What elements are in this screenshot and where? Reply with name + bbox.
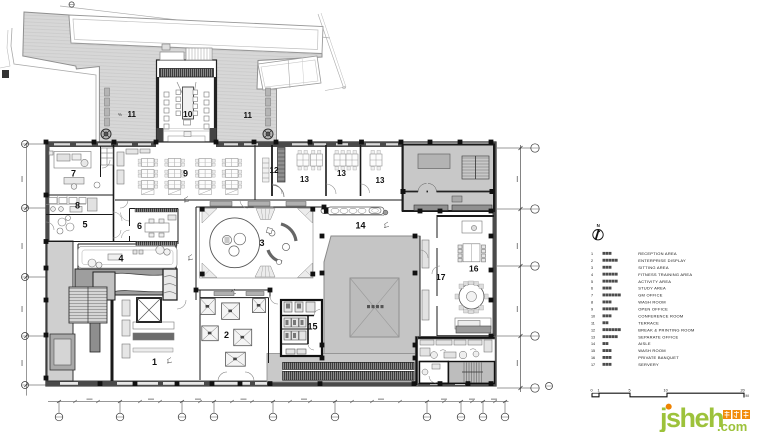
svg-text:5: 5 (591, 280, 593, 284)
svg-text:SEPARATE OFFICE: SEPARATE OFFICE (638, 334, 678, 339)
svg-text:M: M (746, 394, 749, 398)
svg-text:4: 4 (591, 273, 593, 277)
svg-text:13: 13 (591, 335, 595, 339)
svg-text:7: 7 (591, 294, 593, 298)
svg-text:WASH ROOM: WASH ROOM (638, 300, 666, 305)
svg-text:RECEPTION AREA: RECEPTION AREA (638, 251, 677, 256)
svg-text:0: 0 (591, 389, 593, 393)
svg-text:9: 9 (183, 169, 188, 179)
svg-text:.com: .com (717, 419, 747, 432)
svg-text:5: 5 (83, 220, 88, 230)
svg-text:2: 2 (224, 330, 229, 340)
svg-text:N: N (597, 223, 600, 228)
svg-text:8: 8 (591, 301, 593, 305)
svg-text:ACTIVITY AREA: ACTIVITY AREA (638, 279, 671, 284)
svg-text:SITTING AREA: SITTING AREA (638, 265, 669, 270)
svg-text:1: 1 (591, 252, 593, 256)
svg-text:9: 9 (591, 308, 593, 312)
svg-text:11: 11 (591, 321, 595, 325)
svg-text:12: 12 (270, 166, 279, 175)
svg-text:14: 14 (591, 342, 595, 346)
svg-text:15: 15 (591, 349, 595, 353)
svg-text:11: 11 (128, 110, 137, 119)
svg-text:℅: ℅ (118, 112, 122, 117)
svg-text:10: 10 (664, 389, 668, 393)
svg-text:20: 20 (741, 389, 745, 393)
svg-text:12: 12 (591, 328, 595, 332)
svg-text:1: 1 (152, 357, 157, 367)
svg-text:SERVERY: SERVERY (638, 362, 659, 367)
svg-text:STUDY AREA: STUDY AREA (638, 286, 666, 291)
svg-text:AISLE: AISLE (638, 341, 651, 346)
svg-text:WASH ROOM: WASH ROOM (638, 348, 666, 353)
svg-text:15: 15 (308, 322, 318, 332)
svg-text:3: 3 (591, 266, 593, 270)
svg-text:5: 5 (629, 389, 631, 393)
svg-text:3: 3 (260, 238, 265, 248)
svg-text:ENTERPRISE DISPLAY: ENTERPRISE DISPLAY (638, 258, 686, 263)
svg-text:17: 17 (436, 272, 446, 282)
svg-text:6: 6 (137, 221, 142, 231)
svg-text:4: 4 (119, 254, 124, 264)
svg-text:17: 17 (591, 363, 595, 367)
svg-text:13: 13 (337, 169, 346, 178)
svg-text:OPEN OFFICE: OPEN OFFICE (638, 307, 668, 312)
svg-text:16: 16 (469, 264, 479, 274)
svg-text:8: 8 (75, 201, 80, 211)
svg-text:13: 13 (300, 175, 309, 184)
svg-text:6: 6 (591, 287, 593, 291)
svg-text:2: 2 (591, 259, 593, 263)
svg-text:BREAK & PRINTING ROOM: BREAK & PRINTING ROOM (638, 327, 694, 332)
svg-text:7: 7 (71, 169, 76, 179)
svg-text:16: 16 (591, 356, 595, 360)
svg-text:13: 13 (376, 176, 385, 185)
svg-text:1: 1 (598, 389, 600, 393)
svg-text:10: 10 (591, 315, 595, 319)
svg-text:10: 10 (183, 109, 193, 119)
svg-text:GM OFFICE: GM OFFICE (638, 293, 663, 298)
svg-text:14: 14 (356, 221, 366, 231)
svg-text:FITNESS TRAINING AREA: FITNESS TRAINING AREA (638, 272, 692, 277)
svg-text:11: 11 (244, 111, 253, 120)
svg-text:TERRACE: TERRACE (638, 320, 659, 325)
svg-text:CONFERENCE ROOM: CONFERENCE ROOM (638, 314, 683, 319)
svg-text:PRIVATE BANQUET: PRIVATE BANQUET (638, 355, 679, 360)
